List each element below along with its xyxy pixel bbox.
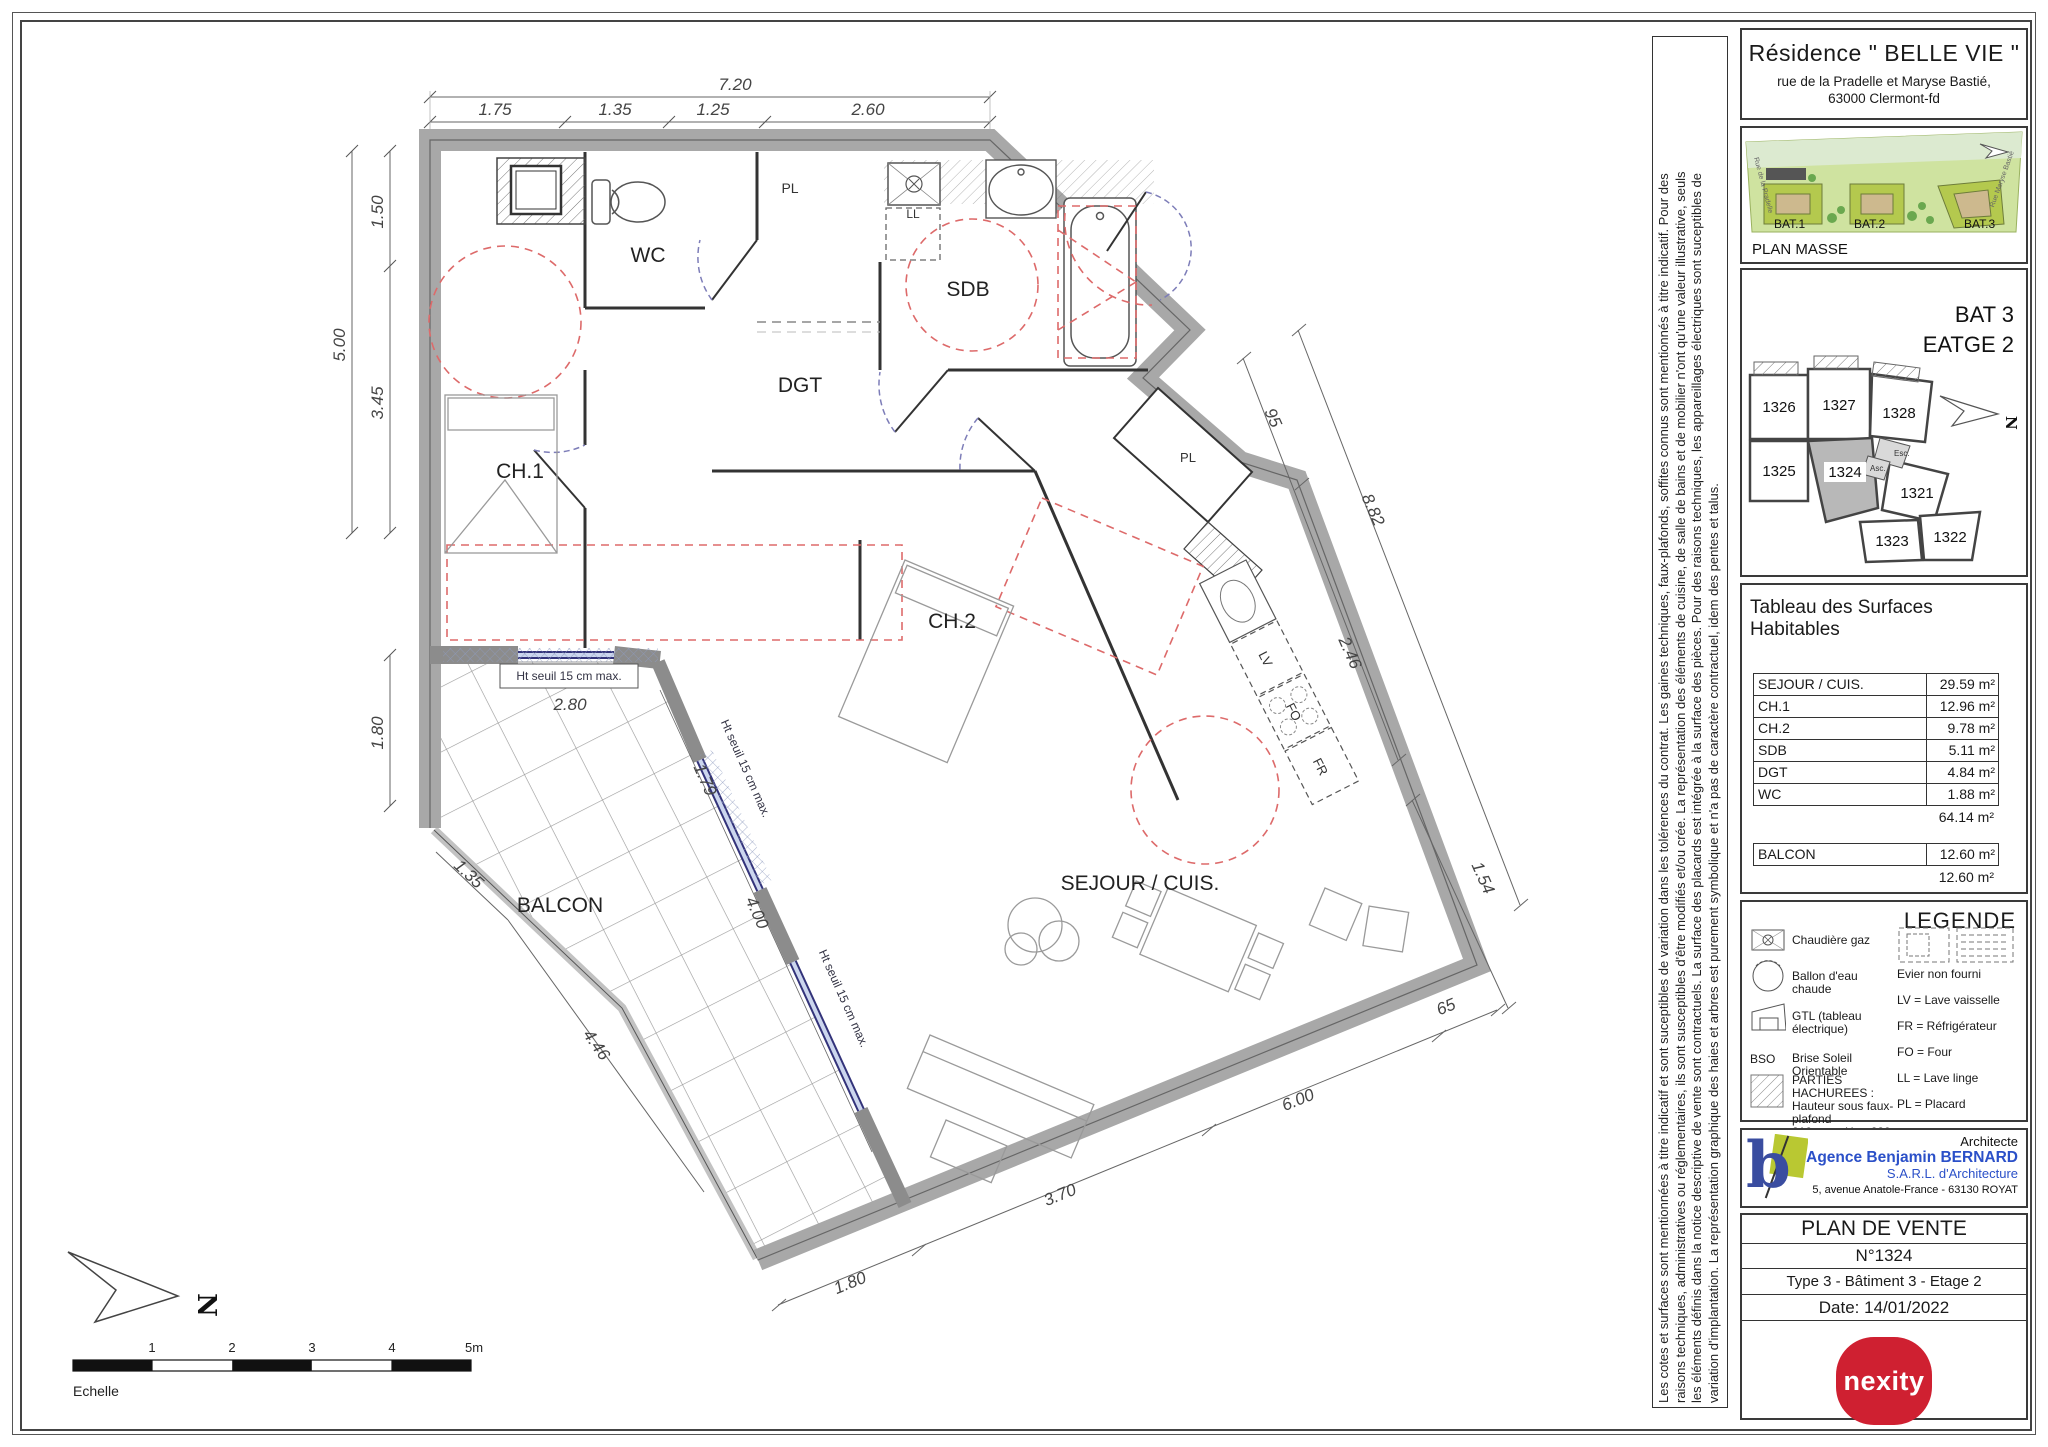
room-label-ch1: CH.1: [496, 460, 544, 483]
dim-t3: 1.25: [696, 100, 730, 119]
toilet-icon: [592, 180, 665, 224]
dim-l2: 3.45: [368, 386, 387, 420]
dim-b3: 6.00: [1279, 1085, 1317, 1115]
hachures-icon: [1750, 1074, 1786, 1108]
room-label-sdb: SDB: [946, 278, 989, 301]
sale-block: PLAN DE VENTE N°1324 Type 3 - Bâtiment 3…: [1740, 1213, 2028, 1420]
legend-block: LEGENDE Chaudière gaz Ballon d'eau chaud…: [1740, 900, 2028, 1122]
table-row: CH.112.96 m²: [1754, 696, 1998, 718]
room-label-sejour: SEJOUR / CUIS.: [1061, 872, 1220, 895]
bat1-label: BAT.1: [1774, 217, 1805, 231]
balcony-row: BALCON12.60 m²: [1753, 843, 1999, 866]
architect-logo: b: [1746, 1134, 1808, 1204]
disclaimer-line-3: les éléments définis dans la notice desc…: [1689, 41, 1706, 1403]
residence-name: Résidence " BELLE VIE ": [1742, 40, 2026, 67]
stair-label: Esc.: [1894, 449, 1910, 458]
scale-tick-1: 1: [148, 1340, 155, 1355]
dim-bal4: 2.80: [552, 695, 587, 714]
room-label-ch2: CH.2: [928, 610, 976, 633]
key-plan-building: BAT 3: [1955, 302, 2014, 327]
unit-1324: 1324: [1828, 464, 1861, 481]
dim-t1: 1.75: [478, 100, 512, 119]
bat2-label: BAT.2: [1854, 217, 1885, 231]
legend-pl: PL = Placard: [1897, 1098, 2025, 1111]
bso-code: BSO: [1750, 1052, 1786, 1066]
architect-block: b Architecte Agence Benjamin BERNARD S.A…: [1740, 1128, 2028, 1208]
fo-label: FO: [1283, 700, 1305, 723]
nexity-logo: nexity: [1836, 1337, 1932, 1425]
legend-lv: LV = Lave vaisselle: [1897, 994, 2025, 1007]
surfaces-title: Tableau des Surfaces Habitables: [1750, 597, 2026, 641]
kitchen-placard-label: PL: [1180, 450, 1196, 465]
unit-1327: 1327: [1822, 397, 1855, 414]
dim-r1: 95: [1260, 405, 1285, 431]
legend-gtl: GTL (tableau électrique): [1792, 1010, 1892, 1036]
scale-bar: 1 2 3 4 5m Echelle: [73, 1340, 483, 1399]
plan-masse-label: PLAN MASSE: [1752, 241, 1848, 258]
seuil-label-1: Ht seuil 15 cm max.: [516, 669, 621, 683]
sale-title: PLAN DE VENTE: [1742, 1215, 2026, 1244]
disclaimer-line-2: raisons techniques, administratives ou r…: [1673, 41, 1690, 1403]
legend-hachures-2: Hauteur sous faux-plafond: [1792, 1100, 1910, 1126]
dim-l1: 1.50: [368, 195, 387, 229]
legend-ballon: Ballon d'eau chaude: [1792, 970, 1892, 996]
title-block: Résidence " BELLE VIE " rue de la Pradel…: [1740, 28, 2028, 120]
lv-label: LV: [1255, 649, 1275, 669]
room-label-dgt: DGT: [778, 374, 823, 397]
bat3-label: BAT.3: [1964, 217, 1995, 231]
key-plan-floor: EATGE 2: [1923, 332, 2014, 357]
surfaces-block: Tableau des Surfaces Habitables SEJOUR /…: [1740, 583, 2028, 894]
scale-tick-3: 3: [308, 1340, 315, 1355]
architect-address: 5, avenue Anatole-France - 63130 ROYAT: [1806, 1182, 2018, 1198]
chaudiere-gaz-icon: [1750, 928, 1786, 952]
legend-fr: FR = Réfrigérateur: [1897, 1020, 2025, 1033]
key-plan-block: 1326 1327 1328 1325 1324 1321 1323 1322 …: [1740, 268, 2028, 577]
gtl-icon: [1750, 1002, 1786, 1032]
dim-b1: 1.80: [831, 1268, 869, 1298]
svg-text:N: N: [191, 1293, 221, 1317]
dim-t2: 1.35: [598, 100, 632, 119]
unit-1328: 1328: [1882, 405, 1915, 422]
architect-company: S.A.R.L. d'Architecture: [1806, 1166, 2018, 1182]
fr-label: FR: [1310, 756, 1331, 778]
sale-number: N°1324: [1742, 1244, 2026, 1269]
architect-role: Architecte: [1806, 1134, 2018, 1150]
table-row: CH.29.78 m²: [1754, 718, 1998, 740]
key-plan-north: N: [2002, 416, 2020, 430]
scale-tick-2: 2: [228, 1340, 235, 1355]
washbasin-icon: [986, 160, 1056, 218]
disclaimer-line-4: variation d'implantation. La représentat…: [1706, 41, 1723, 1403]
balcony-total: 12.60 m²: [1753, 869, 1997, 885]
dim-r-total: 8.82: [1358, 491, 1389, 529]
sale-date: Date: 14/01/2022: [1742, 1295, 2026, 1321]
dim-l3: 1.80: [368, 716, 387, 750]
unit-1323: 1323: [1875, 533, 1908, 550]
table-row: WC1.88 m²: [1754, 784, 1998, 805]
dim-bal2: 4.46: [579, 1026, 614, 1064]
legend-chaudiere: Chaudière gaz: [1792, 934, 1892, 947]
disclaimer-line-1: Les cotes et surfaces sont mentionnées à…: [1656, 41, 1673, 1403]
residence-address-2: 63000 Clermont-fd: [1742, 90, 2026, 107]
floor-plan-drawing: LL PL LV FO FR: [0, 0, 1645, 1447]
room-label-wc: WC: [631, 244, 666, 267]
ll-label: LL: [906, 207, 920, 221]
table-row: DGT4.84 m²: [1754, 762, 1998, 784]
legend-hachures-1: PARTIES HACHUREES :: [1792, 1074, 1910, 1100]
table-row: SDB5.11 m²: [1754, 740, 1998, 762]
dim-t4: 2.60: [850, 100, 885, 119]
disclaimer-box: Les cotes et surfaces sont mentionnées à…: [1652, 36, 1728, 1408]
plan-masse-block: Rue de la Pradelle Rue Maryse Bastié BAT…: [1740, 126, 2028, 264]
placard-top-label: PL: [781, 180, 798, 196]
dim-r3: 1.54: [1468, 859, 1499, 897]
room-label-balcon: BALCON: [517, 894, 603, 917]
legend-ll: LL = Lave linge: [1897, 1072, 2025, 1085]
unit-1326: 1326: [1762, 399, 1795, 416]
residence-address-1: rue de la Pradelle et Maryse Bastié,: [1742, 73, 2026, 90]
surfaces-table: SEJOUR / CUIS.29.59 m² CH.112.96 m² CH.2…: [1753, 673, 1999, 806]
scale-tick-4: 4: [388, 1340, 395, 1355]
unit-1325: 1325: [1762, 463, 1795, 480]
dim-r4: 65: [1434, 994, 1459, 1019]
surfaces-total: 64.14 m²: [1753, 809, 1997, 825]
unit-1322: 1322: [1933, 529, 1966, 546]
ballon-eau-chaude-icon: [1750, 958, 1786, 994]
unit-1321: 1321: [1900, 485, 1933, 502]
north-arrow: N: [68, 1252, 221, 1322]
scale-tick-5: 5m: [465, 1340, 483, 1355]
evier-icon: [1897, 926, 2025, 964]
dim-l-total: 5.00: [330, 328, 349, 362]
scale-label: Echelle: [73, 1383, 119, 1399]
dim-top-total: 7.20: [718, 75, 752, 94]
table-row: SEJOUR / CUIS.29.59 m²: [1754, 674, 1998, 696]
architect-agency: Agence Benjamin BERNARD: [1806, 1150, 2018, 1166]
legend-fo: FO = Four: [1897, 1046, 2025, 1059]
sale-type: Type 3 - Bâtiment 3 - Etage 2: [1742, 1269, 2026, 1295]
legend-evier: Evier non fourni: [1897, 968, 2025, 981]
elevator-label: Asc.: [1870, 464, 1886, 473]
